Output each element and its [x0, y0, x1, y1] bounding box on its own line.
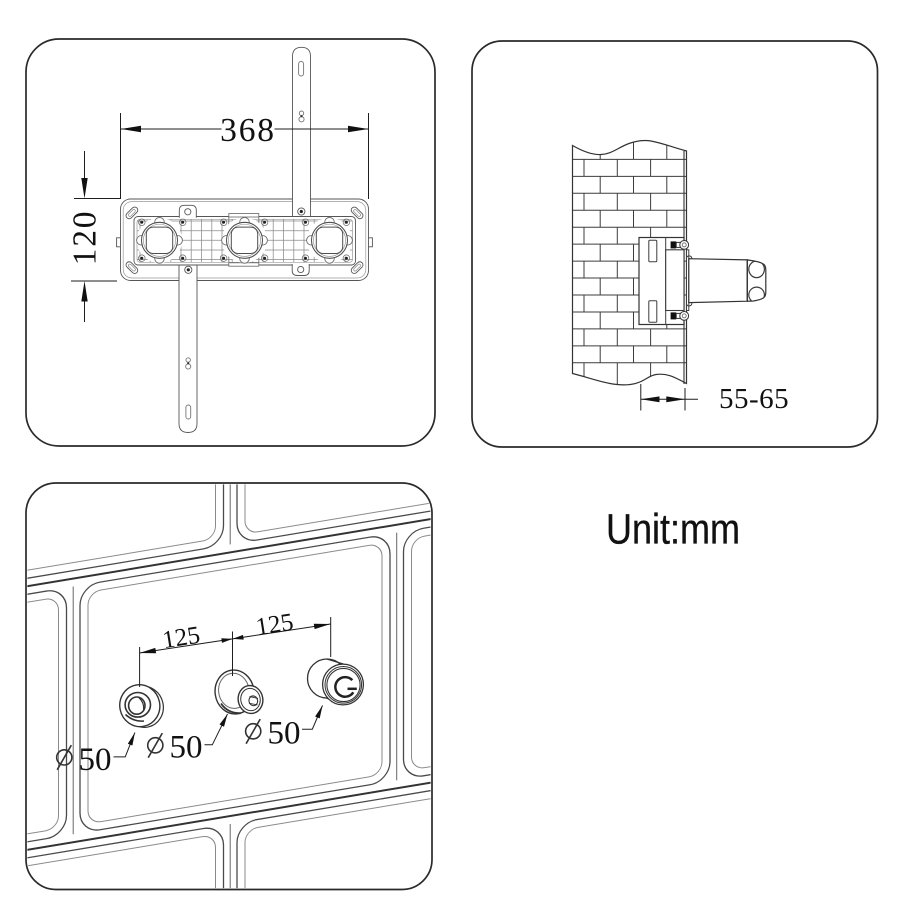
svg-text:120: 120	[67, 210, 104, 266]
svg-text:50: 50	[268, 716, 301, 752]
svg-text:50: 50	[79, 742, 112, 778]
svg-text:368: 368	[220, 112, 276, 149]
svg-text:Unit:mm: Unit:mm	[606, 506, 740, 554]
svg-text:55-65: 55-65	[719, 383, 789, 415]
svg-text:50: 50	[170, 730, 203, 766]
